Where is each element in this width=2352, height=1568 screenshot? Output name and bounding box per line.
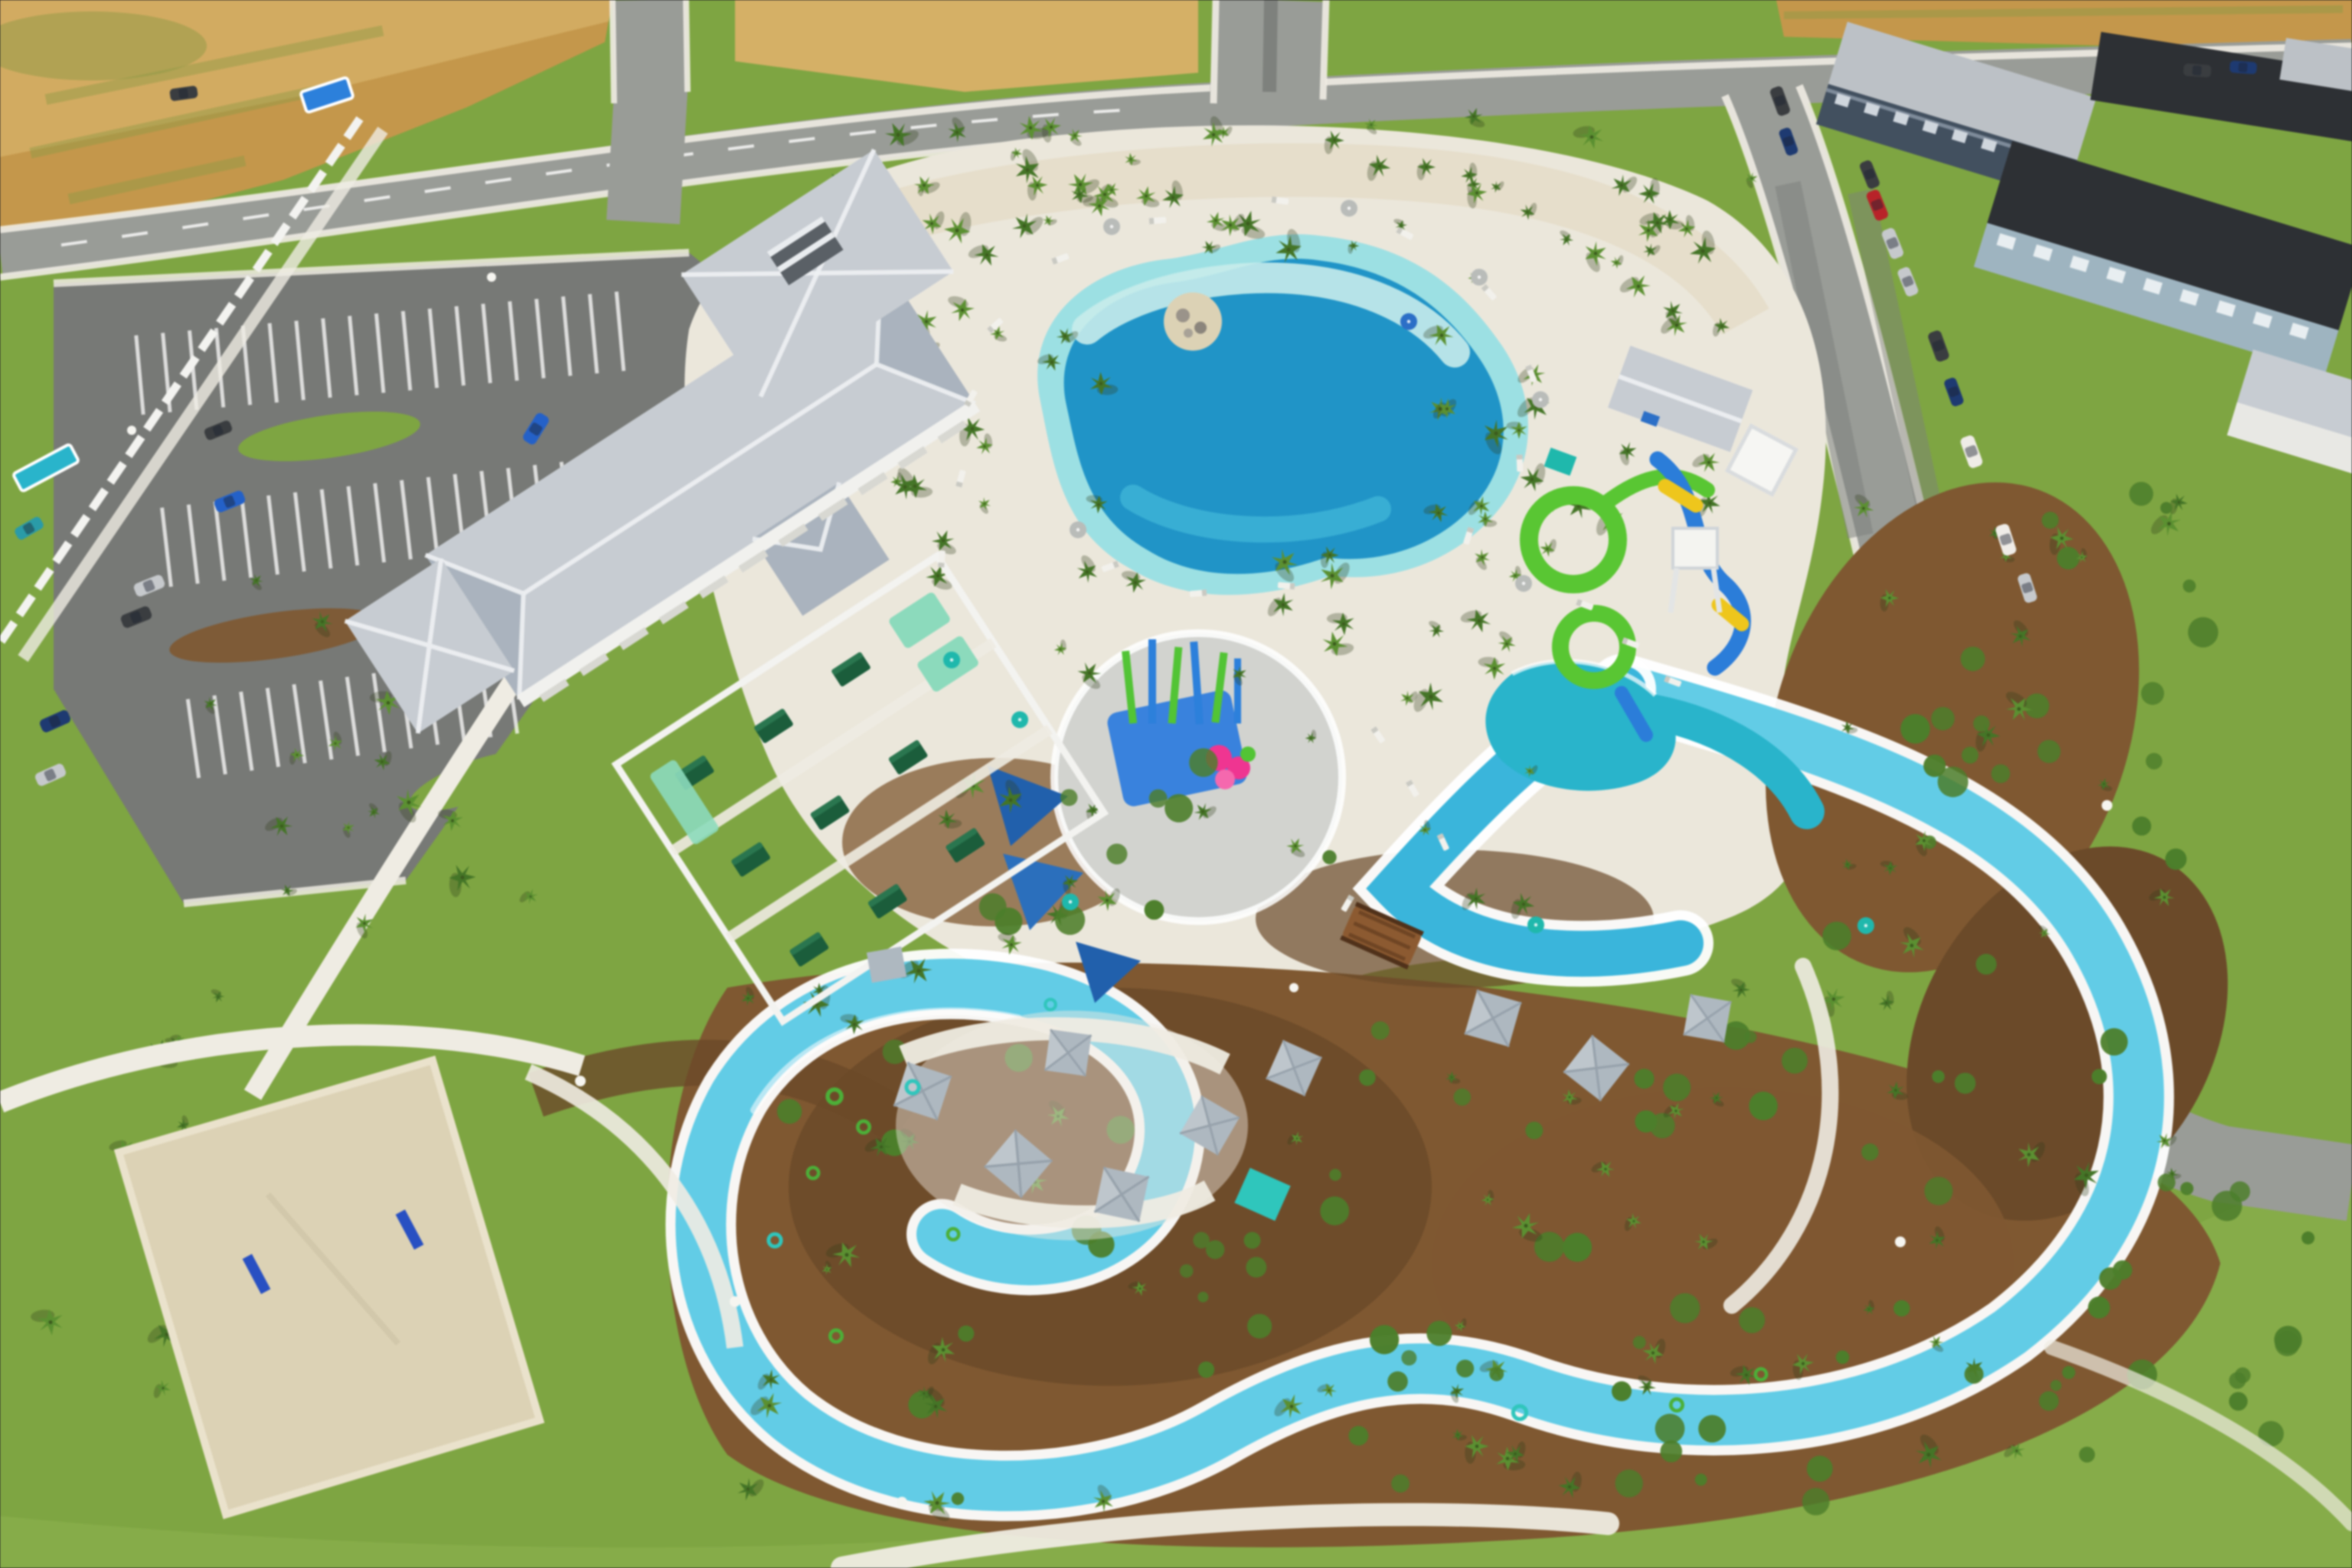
slide-platform (1673, 528, 1717, 568)
blue-umbrella (1400, 313, 1417, 330)
aerial-photo (0, 0, 2352, 1568)
aerial-photo-canvas (0, 0, 2352, 1568)
cabana (867, 946, 906, 982)
beach-entry-island (1164, 292, 1222, 351)
